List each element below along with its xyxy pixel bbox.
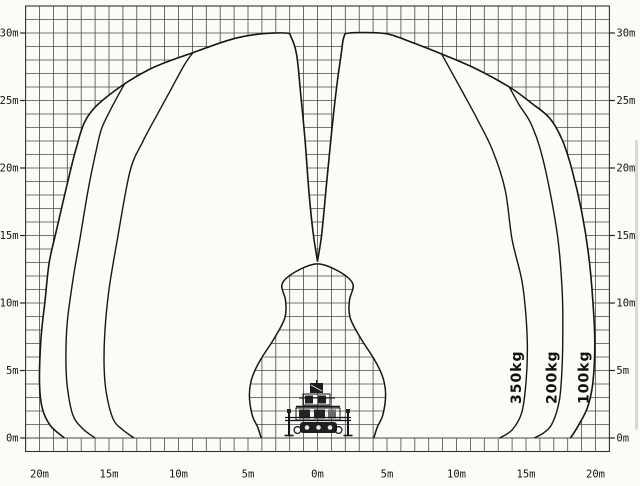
curve-label-350kg: 350kg — [509, 350, 525, 404]
y-tick-label-right: 20m — [616, 163, 635, 175]
machine-icon — [285, 380, 353, 436]
y-tick-label-left: 30m — [0, 28, 19, 40]
curve-label-100kg: 100kg — [576, 350, 592, 404]
y-tick-label-right: 25m — [616, 95, 635, 107]
x-tick-label: 15m — [517, 469, 536, 481]
y-tick-label-right: 10m — [616, 298, 635, 310]
y-tick-label-right: 5m — [616, 365, 629, 377]
y-tick-label-left: 25m — [0, 95, 19, 107]
y-tick-label-right: 30m — [616, 28, 635, 40]
x-tick-label: 20m — [30, 469, 49, 481]
x-tick-label: 15m — [100, 469, 119, 481]
x-tick-label: 20m — [586, 469, 605, 481]
x-tick-label: 5m — [242, 469, 255, 481]
x-tick-label: 0m — [311, 469, 324, 481]
x-tick-label: 5m — [381, 469, 394, 481]
y-tick-label-left: 5m — [6, 365, 19, 377]
y-tick-label-right: 15m — [616, 230, 635, 242]
y-tick-label-left: 0m — [6, 433, 19, 445]
curve-label-200kg: 200kg — [544, 350, 560, 404]
scan-artifact — [635, 140, 638, 430]
y-tick-label-left: 15m — [0, 230, 19, 242]
y-tick-label-left: 20m — [0, 163, 19, 175]
load-chart: 350kg200kg100kg0m0m5m5m10m10m15m15m20m20… — [0, 0, 640, 486]
chart-canvas: 350kg200kg100kg0m0m5m5m10m10m15m15m20m20… — [0, 0, 640, 486]
y-tick-label-left: 10m — [0, 298, 19, 310]
x-tick-label: 10m — [447, 469, 466, 481]
x-tick-label: 10m — [169, 469, 188, 481]
y-tick-label-right: 0m — [616, 433, 629, 445]
